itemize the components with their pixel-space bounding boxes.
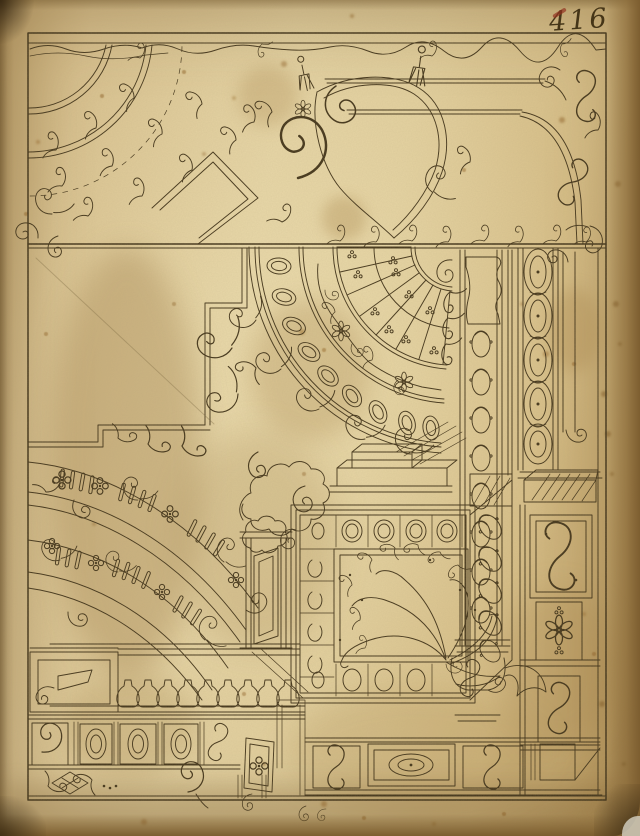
page-number-inscription: 416	[548, 1, 634, 38]
left-margin-ornaments	[33, 468, 92, 627]
vase-leaf-ornament	[451, 658, 546, 721]
ink-drawing	[0, 0, 640, 836]
oval-coffer-band	[266, 257, 440, 441]
guilloche-pilaster	[518, 248, 558, 470]
right-column	[520, 250, 600, 795]
bottom-band	[298, 738, 602, 822]
husk-column	[455, 250, 512, 652]
upper-scroll-study	[16, 45, 606, 258]
top-wave-vine	[30, 34, 606, 62]
coffered-fan-upper-right	[227, 247, 467, 457]
cloud-puffs	[240, 461, 330, 552]
cartouche	[232, 45, 477, 238]
oval-panel-frieze	[28, 700, 305, 795]
stepped-cornice	[28, 248, 267, 480]
fluted-arch-bands	[28, 462, 270, 700]
border-frame	[28, 33, 606, 800]
corner-fan-arcs	[16, 45, 277, 258]
fan-leaf-edge	[437, 260, 467, 365]
lozenge-strip	[45, 759, 266, 810]
right-panel	[325, 62, 605, 252]
scanned-drawing-page: 416	[0, 0, 640, 836]
balustrade	[30, 644, 308, 712]
left-pilaster	[240, 532, 292, 648]
mitred-square-fragment	[152, 152, 258, 244]
lattice-with-florets	[337, 247, 450, 364]
